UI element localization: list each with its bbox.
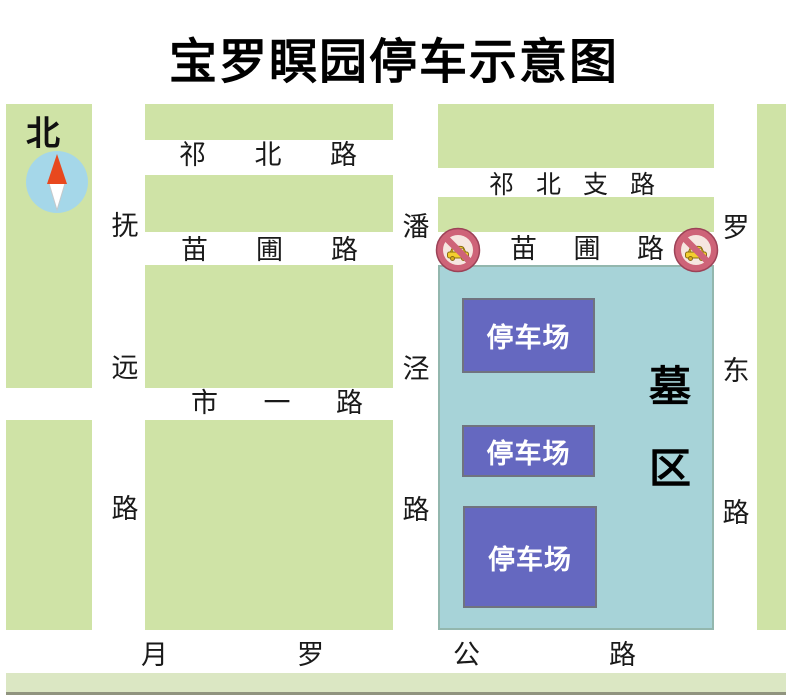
road-char: 泾 <box>403 347 430 386</box>
road-char: 罗 <box>723 206 750 245</box>
road-label-yueluo: 月 罗 公 路 <box>141 641 636 671</box>
parking-lot-3: 停车场 <box>463 506 597 608</box>
road-char: 北 <box>536 171 561 199</box>
city-block <box>145 265 393 388</box>
city-block <box>438 104 714 168</box>
road-char: 北 <box>255 141 282 171</box>
cemetery-label: 墓 区 <box>646 366 694 490</box>
road-char: 支 <box>583 171 608 199</box>
compass-icon <box>25 150 89 214</box>
no-vehicles-icon <box>435 227 481 273</box>
city-block <box>145 175 393 232</box>
road-label-qibei: 祁 北 路 <box>179 141 357 171</box>
city-block <box>145 420 393 630</box>
road-label-fuyuan: 抚 远 路 <box>110 204 140 526</box>
road-char: 路 <box>403 488 430 527</box>
road-char: 圃 <box>574 235 601 265</box>
road-label-qibei-branch: 祁 北 支 路 <box>489 171 655 199</box>
road-char: 祁 <box>179 141 206 171</box>
road-char: 路 <box>630 171 655 199</box>
road-label-miaopu-west: 苗 圃 路 <box>181 236 358 266</box>
road-char: 罗 <box>297 641 324 671</box>
road-char: 潘 <box>403 205 430 244</box>
parking-lot-2: 停车场 <box>462 425 595 477</box>
road-char: 路 <box>723 491 750 530</box>
road-char: 一 <box>264 389 291 419</box>
parking-lot-label: 停车场 <box>487 316 571 355</box>
road-char: 路 <box>637 235 664 265</box>
road-char: 抚 <box>112 204 139 243</box>
page-title: 宝罗瞑园停车示意图 <box>0 22 788 92</box>
city-block <box>6 420 92 630</box>
road-label-miaopu-east: 苗 圃 路 <box>510 235 664 265</box>
road-char: 路 <box>330 141 357 171</box>
cemetery-label-char: 区 <box>649 448 691 490</box>
road-char: 东 <box>723 349 750 388</box>
road-label-shiyi: 市 一 路 <box>191 389 363 419</box>
north-label: 北 <box>26 106 60 155</box>
road-char: 圃 <box>256 236 283 266</box>
road-char: 路 <box>331 236 358 266</box>
road-label-panjing: 潘 泾 路 <box>401 205 431 527</box>
parking-lot-label: 停车场 <box>488 538 572 577</box>
no-vehicles-icon <box>673 227 719 273</box>
road-char: 公 <box>453 641 480 671</box>
road-char: 月 <box>141 641 168 671</box>
road-char: 路 <box>609 641 636 671</box>
road-char: 远 <box>112 346 139 385</box>
road-char: 市 <box>191 389 218 419</box>
city-block-bottom <box>6 673 786 695</box>
city-block <box>145 104 393 140</box>
road-label-luodong: 罗 东 路 <box>721 206 751 530</box>
parking-lot-1: 停车场 <box>462 298 595 373</box>
road-char: 路 <box>336 389 363 419</box>
road-char: 苗 <box>181 236 208 266</box>
road-char: 路 <box>112 487 139 526</box>
road-char: 祁 <box>489 171 514 199</box>
road-char: 苗 <box>510 235 537 265</box>
parking-lot-label: 停车场 <box>487 432 571 471</box>
city-block <box>757 104 786 630</box>
cemetery-label-char: 墓 <box>649 366 691 408</box>
parking-diagram-page: 宝罗瞑园停车示意图 停车场 停车场 停车场 墓 区 北 祁 北 路 祁 北 支 <box>0 0 788 698</box>
